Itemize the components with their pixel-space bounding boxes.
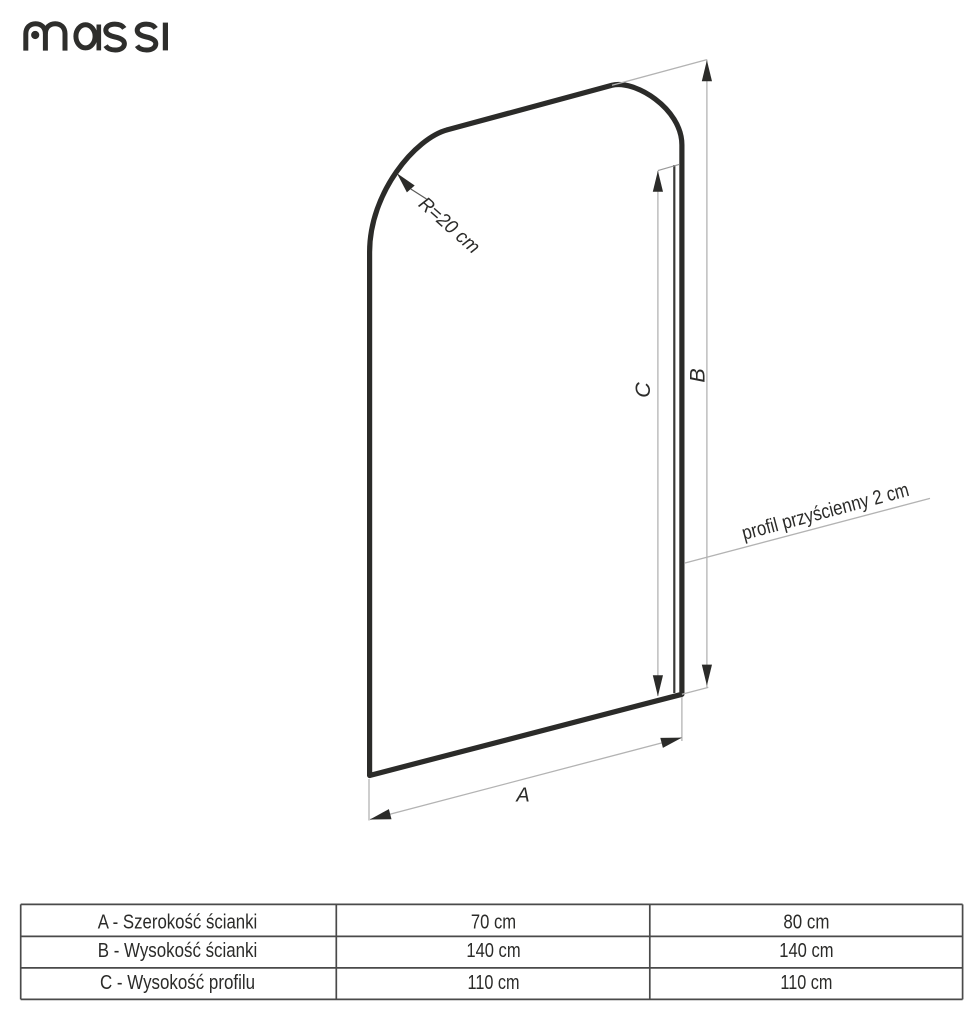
svg-text:B - Wysokość ścianki: B - Wysokość ścianki <box>98 939 258 962</box>
svg-text:B: B <box>686 368 710 382</box>
svg-text:A: A <box>515 785 529 807</box>
svg-text:A - Szerokość ścianki: A - Szerokość ścianki <box>98 911 258 934</box>
svg-text:70 cm: 70 cm <box>471 911 516 934</box>
svg-text:80 cm: 80 cm <box>783 911 829 934</box>
svg-text:140 cm: 140 cm <box>779 939 833 962</box>
svg-text:C - Wysokość profilu: C - Wysokość profilu <box>100 971 255 994</box>
svg-text:140 cm: 140 cm <box>466 939 520 962</box>
svg-text:110 cm: 110 cm <box>468 971 520 994</box>
svg-text:110 cm: 110 cm <box>780 971 832 994</box>
svg-text:C: C <box>631 382 655 398</box>
